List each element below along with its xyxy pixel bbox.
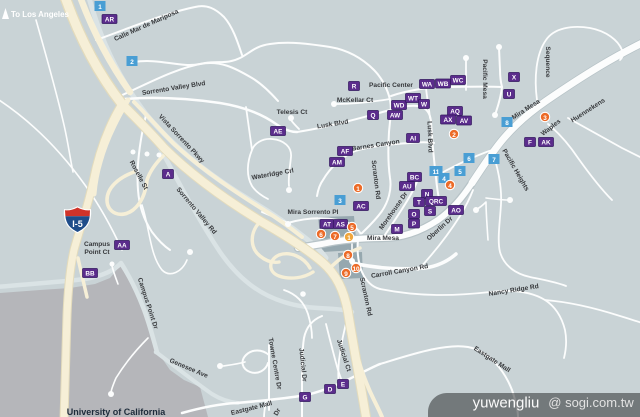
svg-text:P: P xyxy=(412,221,417,228)
svg-text:2: 2 xyxy=(452,132,456,139)
svg-text:1: 1 xyxy=(98,4,102,11)
svg-text:AE: AE xyxy=(274,129,284,136)
svg-text:yuwengliu: yuwengliu xyxy=(473,395,540,412)
svg-text:AV: AV xyxy=(460,118,469,125)
svg-text:AR: AR xyxy=(105,17,115,24)
svg-text:8: 8 xyxy=(346,253,350,260)
svg-text:G: G xyxy=(303,395,308,402)
svg-text:AK: AK xyxy=(541,140,551,147)
svg-text:E: E xyxy=(341,382,346,389)
svg-text:Telesis Ct: Telesis Ct xyxy=(277,109,308,116)
svg-text:BC: BC xyxy=(410,175,420,182)
svg-text:AX: AX xyxy=(444,117,454,124)
svg-text:6: 6 xyxy=(467,156,471,163)
svg-text:I-5: I-5 xyxy=(72,219,83,229)
svg-text:AF: AF xyxy=(341,149,350,156)
svg-text:Pacific Center: Pacific Center xyxy=(369,82,413,89)
svg-text:WC: WC xyxy=(453,78,464,85)
svg-text:AM: AM xyxy=(332,160,342,167)
svg-text:9: 9 xyxy=(344,271,348,278)
svg-text:6: 6 xyxy=(319,232,323,239)
svg-text:AC: AC xyxy=(356,204,366,211)
svg-text:A: A xyxy=(166,172,171,179)
svg-text:Point Ct: Point Ct xyxy=(84,249,110,256)
svg-text:University of California: University of California xyxy=(67,407,167,417)
svg-text:WB: WB xyxy=(438,81,449,88)
svg-text:F: F xyxy=(528,140,532,147)
svg-text:WD: WD xyxy=(394,103,405,110)
svg-text:3: 3 xyxy=(338,198,342,205)
svg-text:M: M xyxy=(394,227,399,234)
svg-text:McKellar Ct: McKellar Ct xyxy=(337,97,374,104)
svg-text:Lusk Blvd: Lusk Blvd xyxy=(425,121,433,153)
svg-text:5: 5 xyxy=(458,169,462,176)
svg-text:Q: Q xyxy=(371,113,376,120)
svg-text:QRC: QRC xyxy=(429,199,444,206)
svg-text:Mira Sorrento Pl: Mira Sorrento Pl xyxy=(288,209,339,216)
svg-text:AO: AO xyxy=(451,208,461,215)
svg-text:Sequence: Sequence xyxy=(544,46,551,77)
svg-text:@ sogi.com.tw: @ sogi.com.tw xyxy=(548,395,634,410)
svg-text:8: 8 xyxy=(505,120,509,127)
svg-text:S: S xyxy=(428,209,433,216)
svg-text:7: 7 xyxy=(333,234,337,241)
svg-text:Campus: Campus xyxy=(84,241,110,248)
svg-text:AQ: AQ xyxy=(450,109,460,116)
svg-text:Mira Mesa: Mira Mesa xyxy=(367,235,399,242)
svg-text:1: 1 xyxy=(347,235,351,242)
svg-text:AA: AA xyxy=(117,243,127,250)
svg-text:5: 5 xyxy=(350,225,354,232)
svg-text:AW: AW xyxy=(390,113,401,120)
svg-text:U: U xyxy=(507,92,512,99)
svg-text:D: D xyxy=(328,387,333,394)
svg-text:AS: AS xyxy=(336,222,346,229)
svg-text:Pacific Mesa: Pacific Mesa xyxy=(481,59,488,99)
svg-text:WA: WA xyxy=(422,82,433,89)
svg-text:7: 7 xyxy=(492,157,496,164)
svg-text:4: 4 xyxy=(442,176,446,183)
svg-text:AI: AI xyxy=(410,136,417,143)
svg-text:AU: AU xyxy=(402,184,412,191)
svg-text:T: T xyxy=(417,200,421,207)
svg-text:O: O xyxy=(412,212,417,219)
svg-text:10: 10 xyxy=(352,266,360,273)
svg-text:R: R xyxy=(352,84,357,91)
svg-text:X: X xyxy=(512,75,517,82)
svg-text:2: 2 xyxy=(130,59,134,66)
svg-text:WT: WT xyxy=(408,96,418,103)
svg-text:1: 1 xyxy=(356,186,360,193)
svg-text:To Los Angeles: To Los Angeles xyxy=(11,10,69,19)
svg-text:4: 4 xyxy=(448,183,452,190)
svg-text:BB: BB xyxy=(85,271,95,278)
svg-text:3: 3 xyxy=(543,115,547,122)
svg-text:AT: AT xyxy=(323,222,331,229)
svg-text:W: W xyxy=(421,102,428,109)
